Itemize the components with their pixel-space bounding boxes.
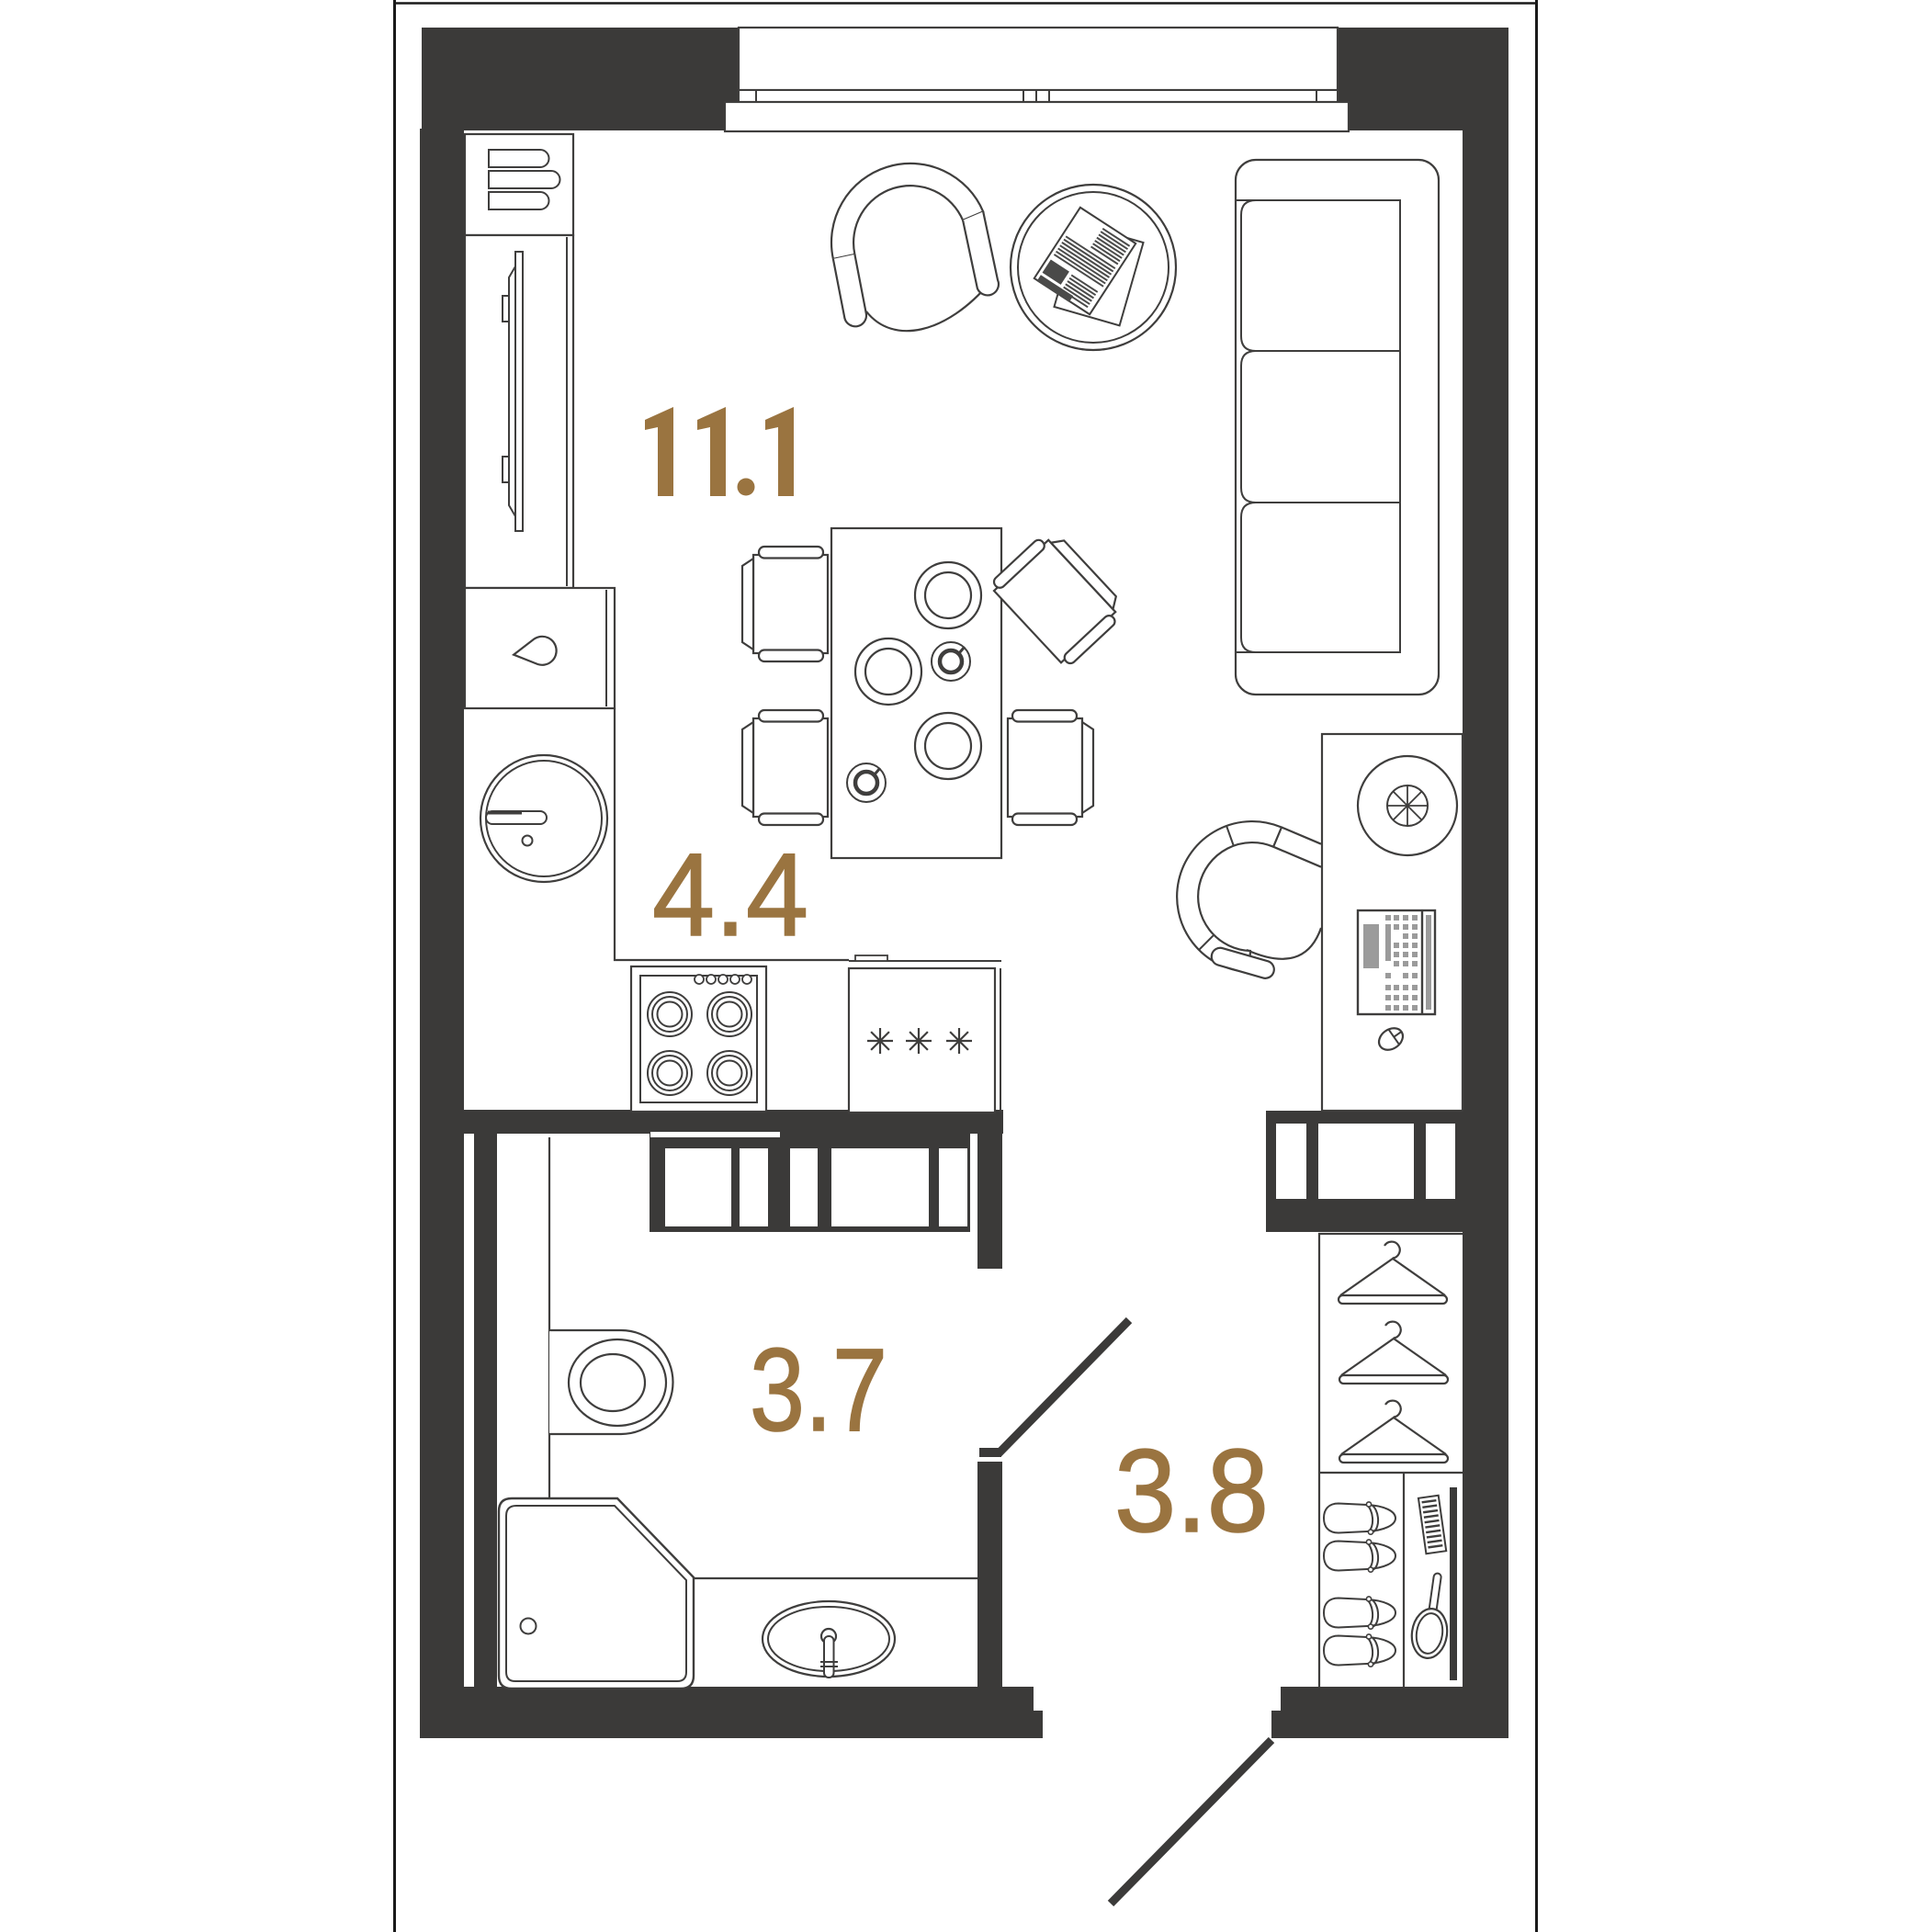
svg-text:3.8: 3.8 — [1114, 1426, 1269, 1557]
svg-text:4.4: 4.4 — [652, 830, 808, 961]
svg-text:3.7: 3.7 — [750, 1325, 887, 1456]
